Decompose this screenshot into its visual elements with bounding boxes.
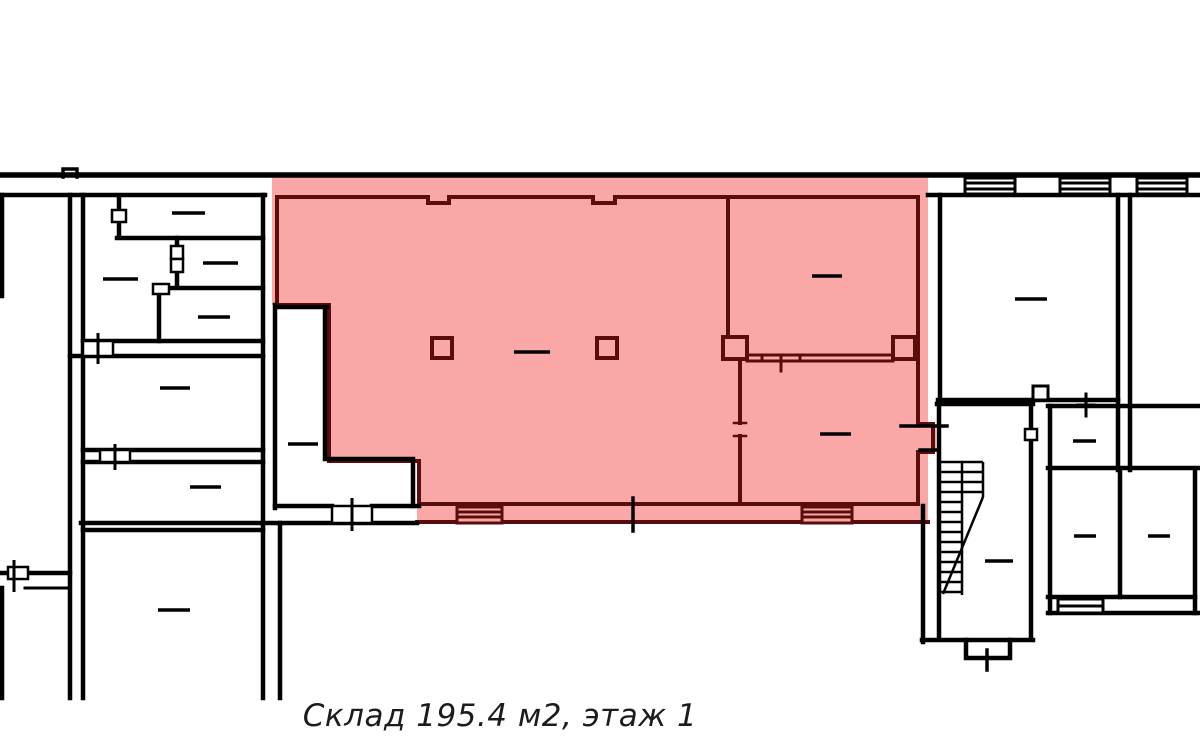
stairwell-walls (922, 404, 1033, 642)
door-symbol (352, 506, 372, 523)
door-symbol (83, 341, 98, 356)
window-symbol (1137, 178, 1187, 194)
window-symbol (457, 507, 502, 523)
window-symbol (802, 507, 852, 523)
window-symbol (1058, 599, 1103, 613)
door-symbol (98, 341, 113, 356)
door-symbol (153, 284, 169, 294)
staircase (941, 462, 983, 595)
door-symbol (1025, 429, 1037, 440)
plan-caption: Склад 195.4 м2, этаж 1 (0, 698, 1000, 734)
wall-pilaster (1033, 386, 1048, 400)
door-symbol (171, 246, 183, 259)
door-tick (1078, 394, 1094, 416)
window-symbol (1060, 178, 1110, 194)
floor-plan-drawing (0, 0, 1200, 745)
window-symbols (965, 178, 1187, 613)
door-symbol (112, 210, 126, 222)
door-symbol (332, 506, 352, 523)
column (893, 337, 915, 359)
column (723, 337, 747, 359)
door-symbol (8, 567, 28, 579)
floor-plan-page: Склад 195.4 м2, этаж 1 (0, 0, 1200, 745)
door-symbol (171, 259, 183, 272)
window-symbol (965, 178, 1015, 194)
column (597, 338, 617, 358)
door-symbol (115, 450, 130, 462)
column (432, 338, 452, 358)
door-symbol (100, 450, 115, 462)
